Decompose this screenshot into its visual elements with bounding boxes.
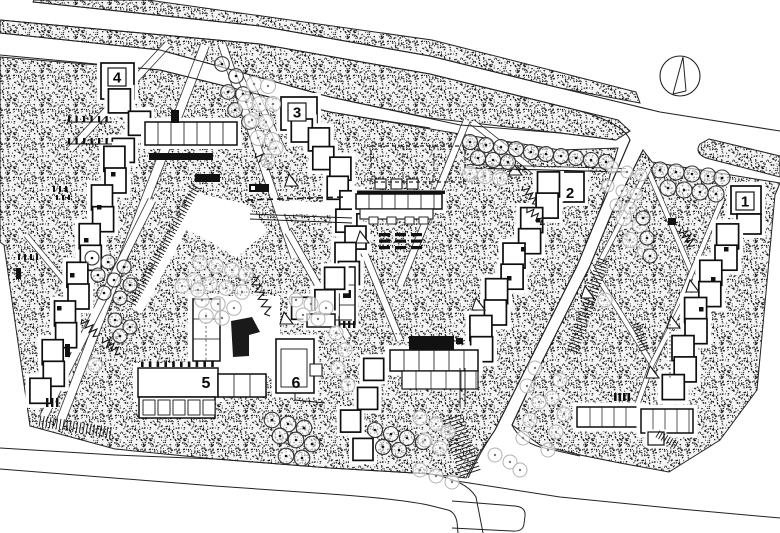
- svg-text:2: 2: [566, 185, 574, 202]
- svg-text:4: 4: [113, 70, 122, 87]
- svg-text:3: 3: [293, 105, 301, 122]
- svg-text:5: 5: [202, 375, 211, 392]
- svg-text:1: 1: [741, 194, 749, 211]
- svg-text:6: 6: [292, 375, 301, 392]
